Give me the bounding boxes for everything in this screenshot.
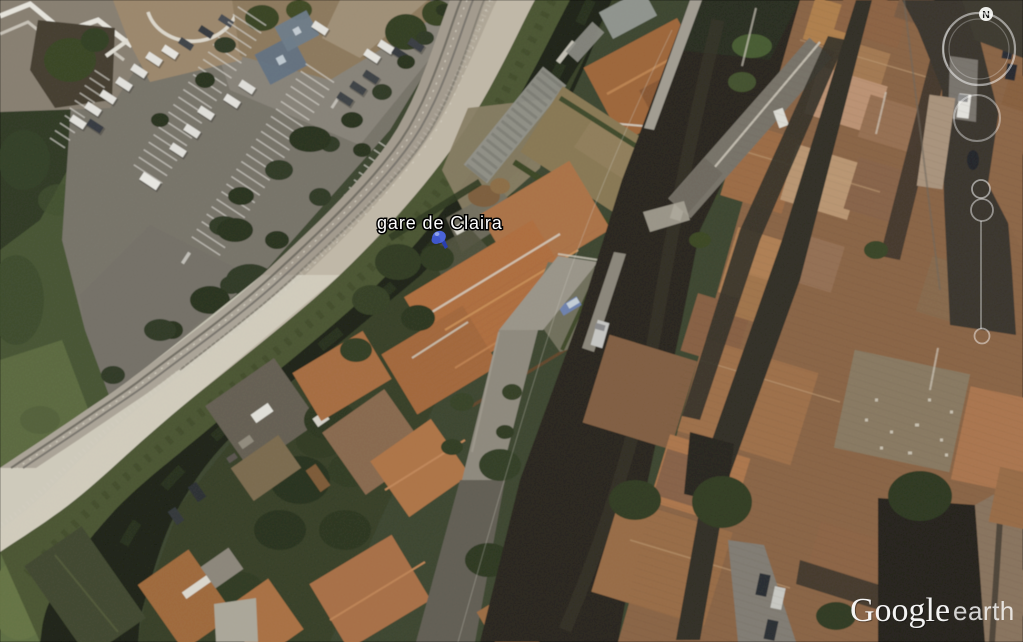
svg-text:gare de Claira: gare de Claira — [377, 213, 503, 233]
svg-text:Google: Google — [850, 592, 950, 629]
svg-text:earth: earth — [953, 596, 1015, 626]
